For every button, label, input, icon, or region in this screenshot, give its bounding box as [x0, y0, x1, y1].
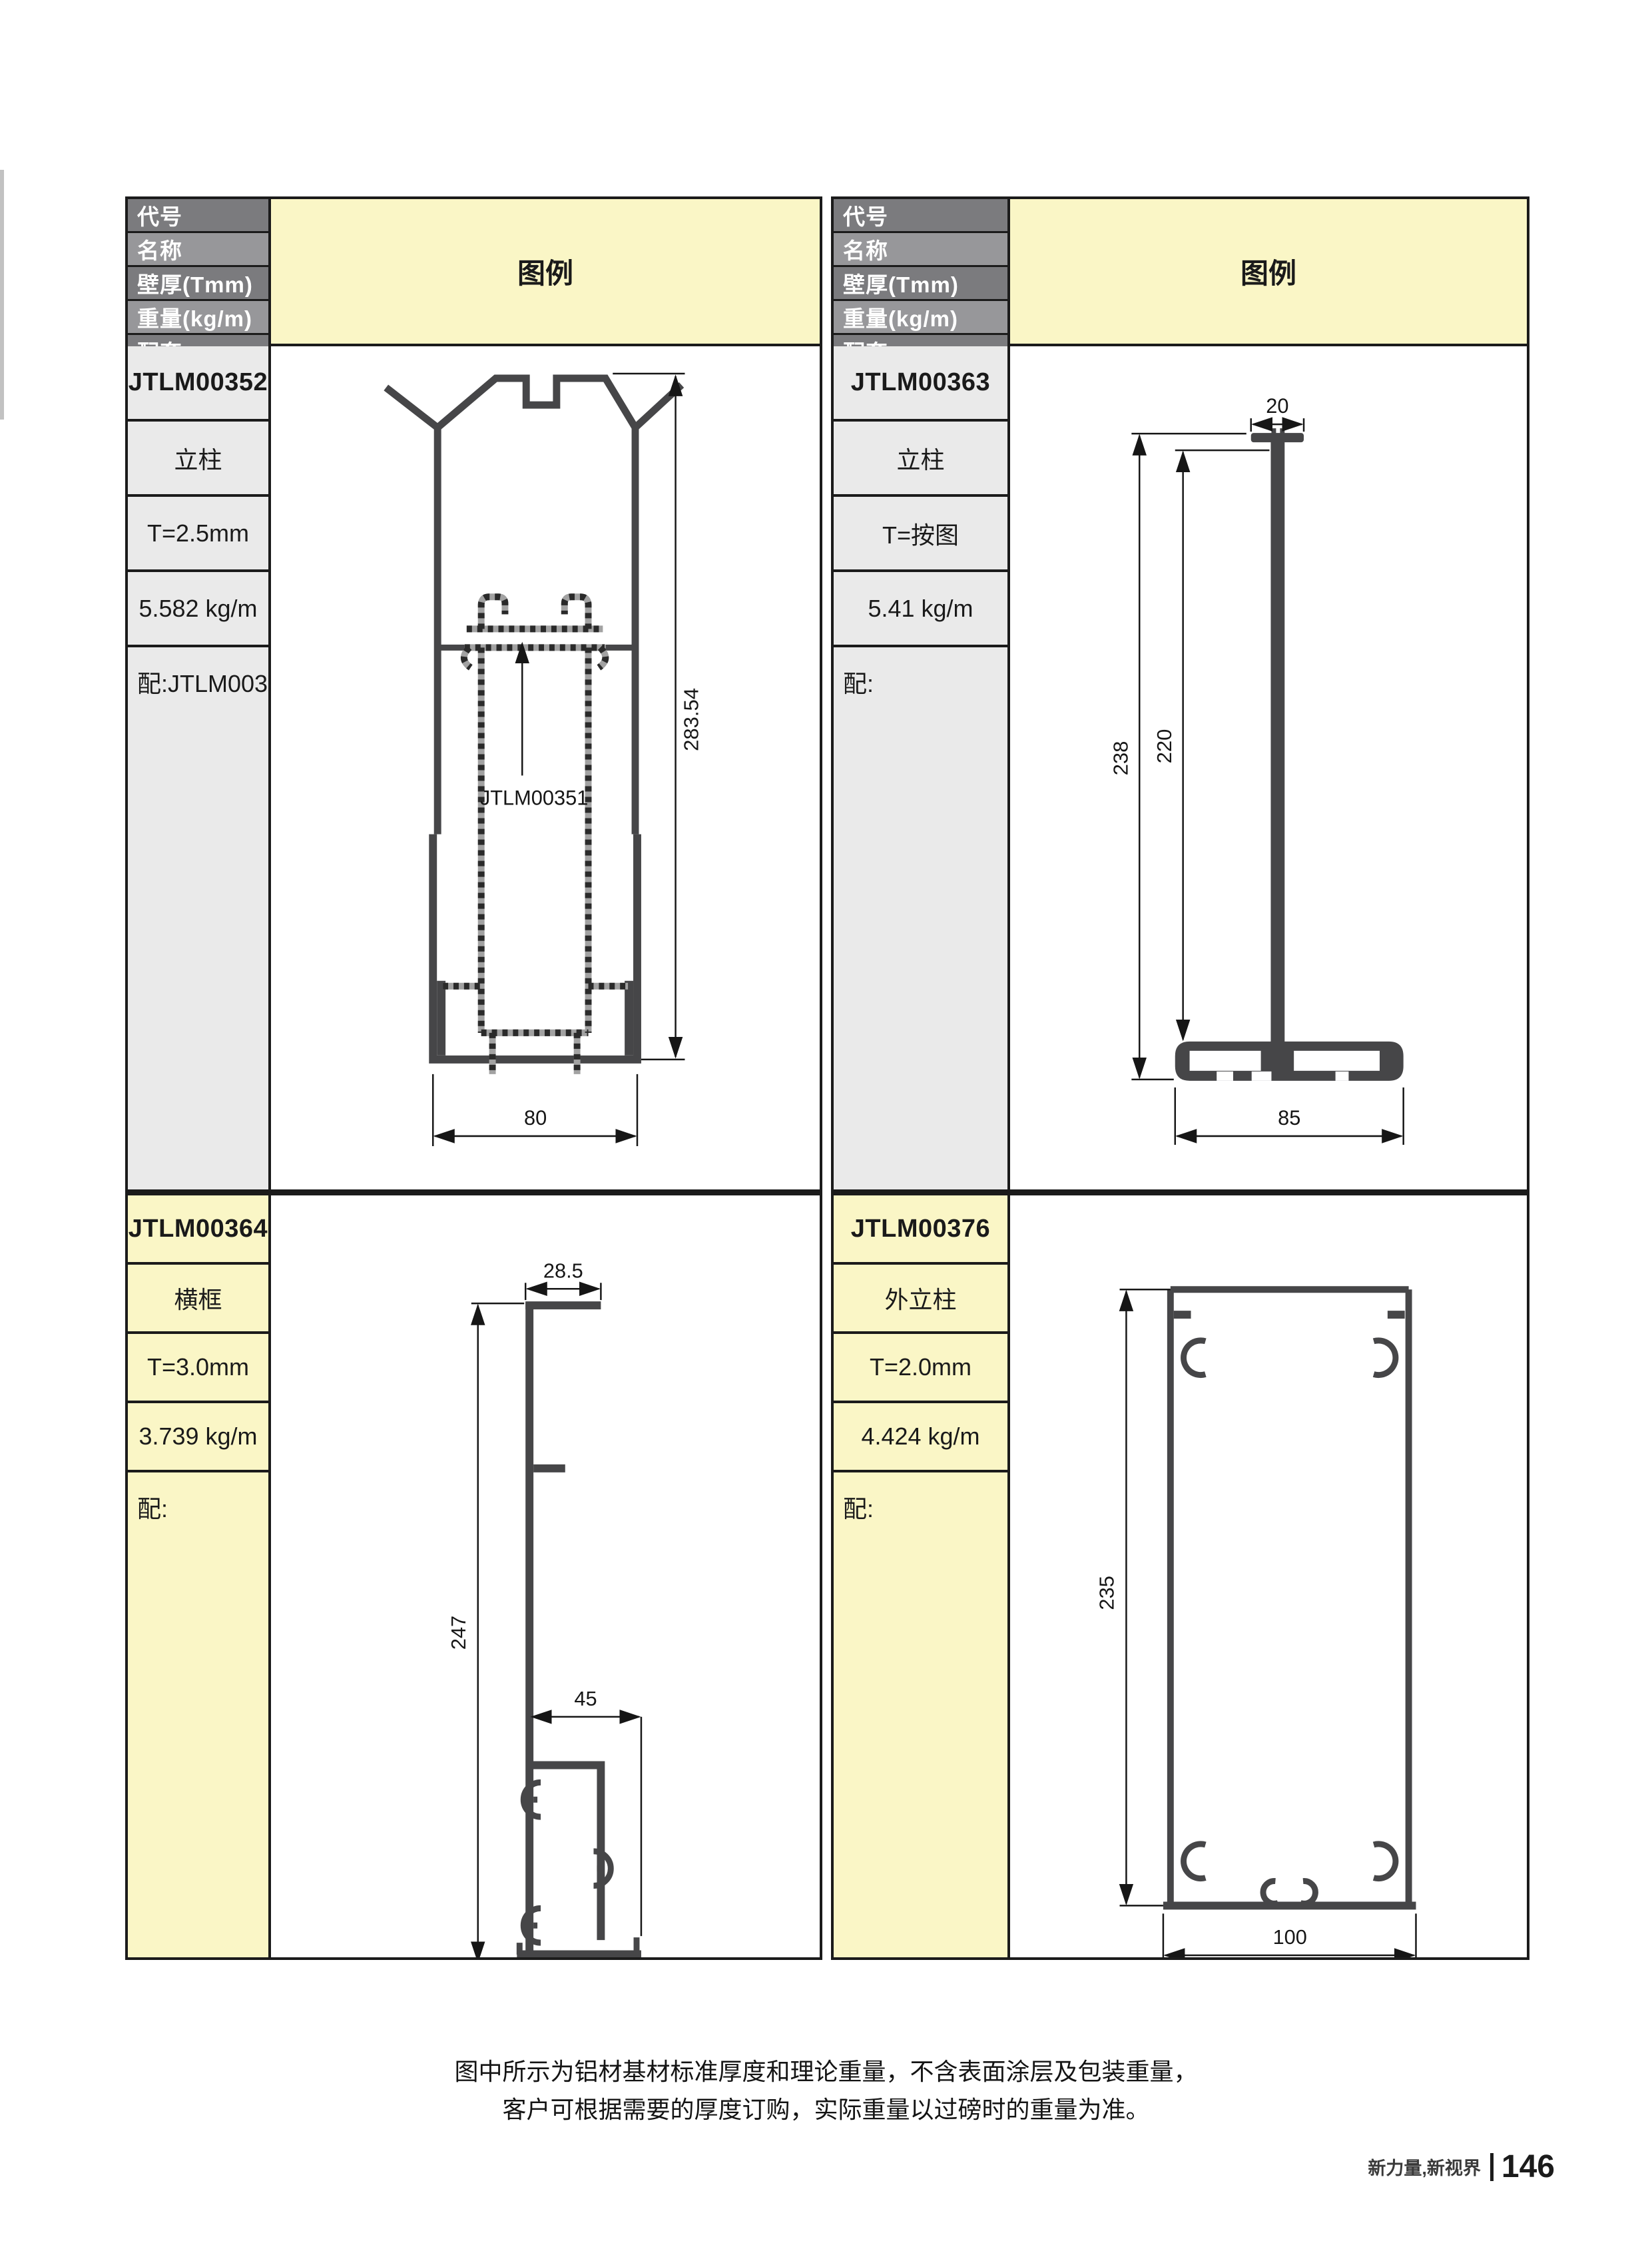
dim-height: 235 [1095, 1576, 1119, 1610]
dim-base-width: 45 [574, 1687, 597, 1710]
dim-width: 80 [524, 1106, 547, 1129]
page-number: 146 [1502, 2148, 1555, 2185]
brand-slogan: 新力量,新视界 [1368, 2154, 1481, 2180]
footer-note: 图中所示为铝材基材标准厚度和理论重量，不含表面涂层及包装重量， 客户可根据需要的… [0, 2053, 1652, 2128]
profile-weight: 3.739 kg/m [128, 1403, 268, 1472]
spec-column: JTLM00376 外立柱 T=2.0mm 4.424 kg/m 配: [834, 1195, 1010, 1957]
profile-match: 配: [834, 1472, 1007, 1957]
profile-match: 配:JTLM00351 [128, 647, 268, 1189]
header-row-code: 代号 [834, 199, 1007, 233]
dim-stem-height: 220 [1153, 729, 1176, 764]
dim-height: 247 [447, 1616, 470, 1650]
footer-divider [1490, 2153, 1494, 2181]
header-row-weight: 重量(kg/m) [834, 301, 1007, 335]
profile-weight: 4.424 kg/m [834, 1403, 1007, 1472]
profile-block-jtlm00376: JTLM00376 外立柱 T=2.0mm 4.424 kg/m 配: [834, 1195, 1527, 1957]
header-row-name: 名称 [834, 233, 1007, 267]
profile-weight: 5.41 kg/m [834, 572, 1007, 647]
profile-code: JTLM00352 [128, 346, 268, 422]
header-label-column: 代号 名称 壁厚(Tmm) 重量(kg/m) 配套 [834, 199, 1010, 346]
header-row-weight: 重量(kg/m) [128, 301, 268, 335]
profile-code: JTLM00364 [128, 1195, 268, 1265]
footer-note-line1: 图中所示为铝材基材标准厚度和理论重量，不含表面涂层及包装重量， [0, 2053, 1652, 2090]
profile-match: 配: [834, 647, 1007, 1189]
header-row-name: 名称 [128, 233, 268, 267]
companion-profile-dashed [443, 597, 628, 1074]
legend-header: 图例 [1010, 199, 1527, 346]
legend-header: 图例 [271, 199, 820, 346]
header-label-column: 代号 名称 壁厚(Tmm) 重量(kg/m) 配套 [128, 199, 271, 346]
catalog-page: { "table": { "row_headers": ["代号", "名称",… [0, 0, 1652, 2241]
table-header: 代号 名称 壁厚(Tmm) 重量(kg/m) 配套 图例 [834, 199, 1527, 346]
dim-cap-width: 20 [1266, 394, 1288, 418]
spec-table-left: 代号 名称 壁厚(Tmm) 重量(kg/m) 配套 图例 JTLM00352 立… [125, 196, 822, 1960]
profile-code: JTLM00363 [834, 346, 1007, 422]
profile-thickness: T=2.0mm [834, 1334, 1007, 1403]
header-row-code: 代号 [128, 199, 268, 233]
print-crop-mark [0, 170, 4, 420]
spec-column: JTLM00363 立柱 T=按图 5.41 kg/m 配: [834, 346, 1010, 1189]
profile-name: 外立柱 [834, 1265, 1007, 1334]
dim-width: 100 [1273, 1925, 1307, 1949]
table-header: 代号 名称 壁厚(Tmm) 重量(kg/m) 配套 图例 [128, 199, 820, 346]
profile-block-jtlm00352: JTLM00352 立柱 T=2.5mm 5.582 kg/m 配:JTLM00… [128, 346, 820, 1189]
quadrant-divider [834, 1189, 1527, 1195]
profile-name: 横框 [128, 1265, 268, 1334]
profile-thickness: T=按图 [834, 497, 1007, 572]
profile-thickness: T=3.0mm [128, 1334, 268, 1403]
profile-drawing-jtlm00364: 28.5 247 45 [271, 1195, 820, 1957]
header-row-thickness: 壁厚(Tmm) [834, 267, 1007, 301]
cross-section-drawing: 20 238 220 85 [1010, 346, 1527, 1189]
page-footer: 新力量,新视界 146 [1368, 2148, 1555, 2185]
spec-column: JTLM00364 横框 T=3.0mm 3.739 kg/m 配: [128, 1195, 271, 1957]
profile-name: 立柱 [834, 422, 1007, 497]
profile-thickness: T=2.5mm [128, 497, 268, 572]
dim-height: 283.54 [679, 688, 702, 751]
profile-block-jtlm00363: JTLM00363 立柱 T=按图 5.41 kg/m 配: [834, 346, 1527, 1189]
dim-flange-width: 28.5 [543, 1259, 583, 1282]
header-row-thickness: 壁厚(Tmm) [128, 267, 268, 301]
cross-section-drawing: 28.5 247 45 [271, 1195, 820, 1957]
cross-section-drawing: JTLM00351 283.54 80 [271, 346, 820, 1189]
profile-block-jtlm00364: JTLM00364 横框 T=3.0mm 3.739 kg/m 配: [128, 1195, 820, 1957]
quadrant-divider [128, 1189, 820, 1195]
profile-drawing-jtlm00352: JTLM00351 283.54 80 [271, 346, 820, 1189]
spec-column: JTLM00352 立柱 T=2.5mm 5.582 kg/m 配:JTLM00… [128, 346, 271, 1189]
dim-base-width: 85 [1278, 1106, 1300, 1129]
profile-name: 立柱 [128, 422, 268, 497]
profile-drawing-jtlm00363: 20 238 220 85 [1010, 346, 1527, 1189]
cross-section-drawing: 235 100 [1010, 1195, 1527, 1957]
callout-inner-profile: JTLM00351 [480, 786, 588, 809]
profile-drawing-jtlm00376: 235 100 [1010, 1195, 1527, 1957]
profile-match: 配: [128, 1472, 268, 1957]
footer-note-line2: 客户可根据需要的厚度订购，实际重量以过磅时的重量为准。 [0, 2090, 1652, 2128]
profile-code: JTLM00376 [834, 1195, 1007, 1265]
spec-table-right: 代号 名称 壁厚(Tmm) 重量(kg/m) 配套 图例 JTLM00363 立… [831, 196, 1529, 1960]
profile-weight: 5.582 kg/m [128, 572, 268, 647]
dim-overall-height: 238 [1109, 741, 1133, 776]
